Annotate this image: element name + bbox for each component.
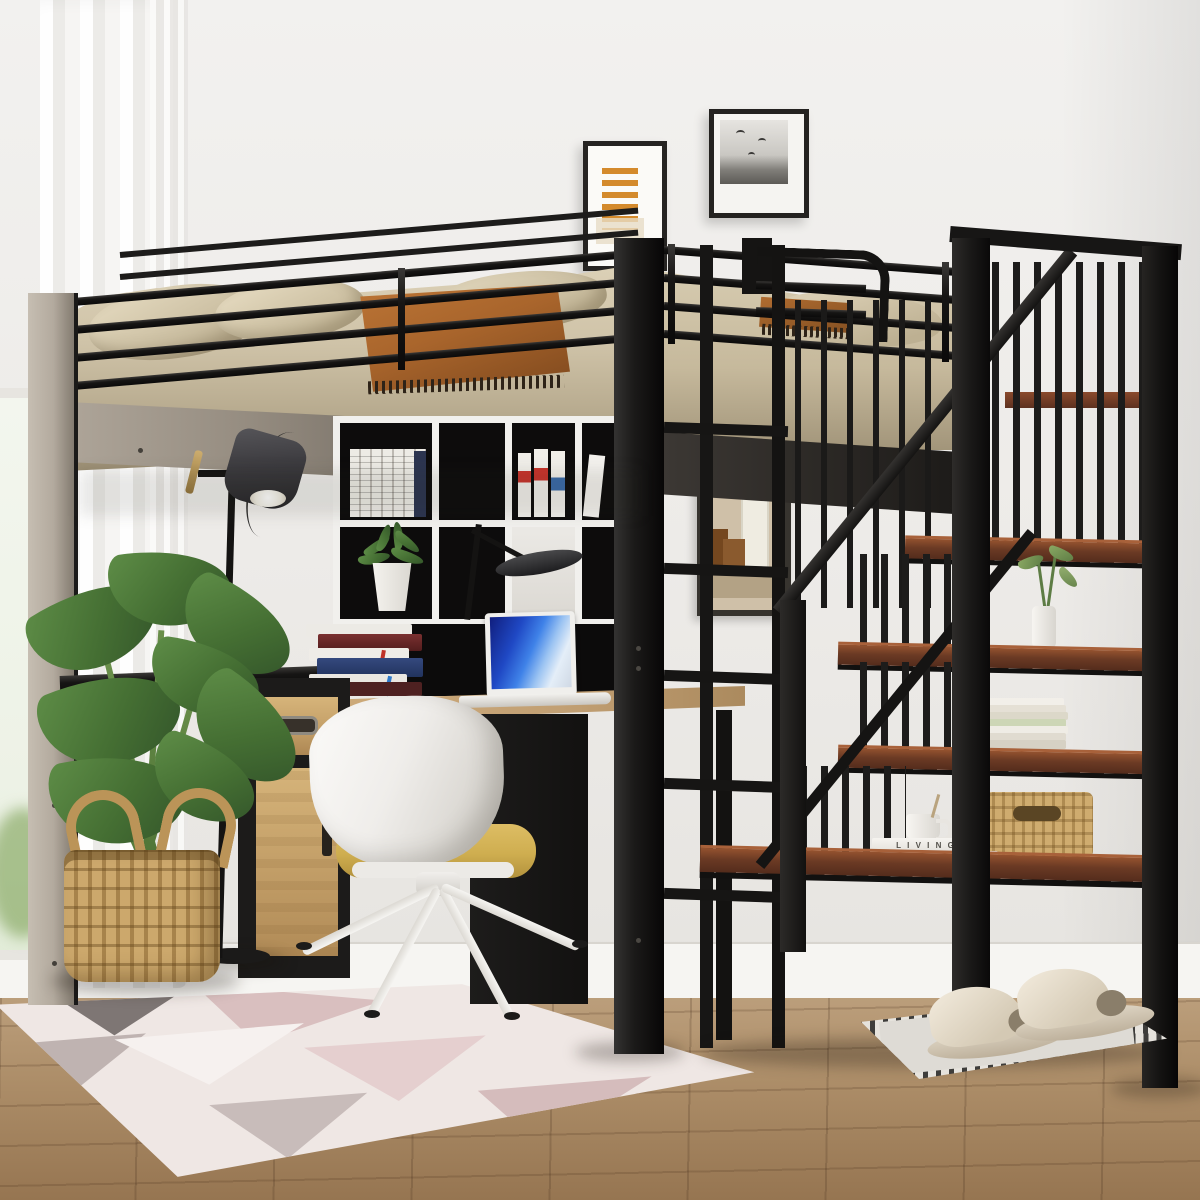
succulent-pot [370, 563, 414, 611]
picture-birds [709, 109, 809, 218]
chair-foot [504, 1012, 520, 1020]
screw [138, 448, 143, 453]
screw [636, 938, 641, 943]
shelf-plant-vase [1032, 606, 1056, 650]
desk-leg [716, 710, 732, 1040]
screw [636, 666, 641, 671]
chair-foot [572, 940, 588, 948]
scene: L I V I N G [0, 0, 1200, 1200]
laptop-wallpaper [490, 615, 572, 689]
stair-handrail-post [780, 600, 806, 952]
end-frame-vertical [700, 245, 713, 1048]
bird-icon [758, 138, 766, 144]
guardrail-stub [668, 244, 675, 344]
laptop-base [459, 692, 611, 708]
bird-icon [748, 152, 755, 158]
bird-icon [736, 130, 745, 137]
guardrail-stub [398, 268, 405, 370]
plant-basket [64, 850, 220, 982]
wall-shadow-under-bed [80, 470, 640, 516]
mug [906, 814, 940, 840]
stair-post-front [952, 238, 990, 1062]
stair-railing-spindles [992, 262, 1144, 544]
painting-floor [703, 575, 773, 598]
seagrass-basket [985, 792, 1093, 858]
laptop [457, 610, 620, 714]
bed-post-center [614, 238, 664, 1054]
screw [636, 646, 641, 651]
cube-shelf [333, 416, 643, 626]
basket-handle-slot [1013, 806, 1061, 821]
screw [52, 961, 57, 966]
chair-foot [296, 942, 312, 950]
chair-foot [364, 1010, 380, 1018]
chair-backrest [307, 693, 507, 870]
laptop-screen [485, 611, 577, 697]
